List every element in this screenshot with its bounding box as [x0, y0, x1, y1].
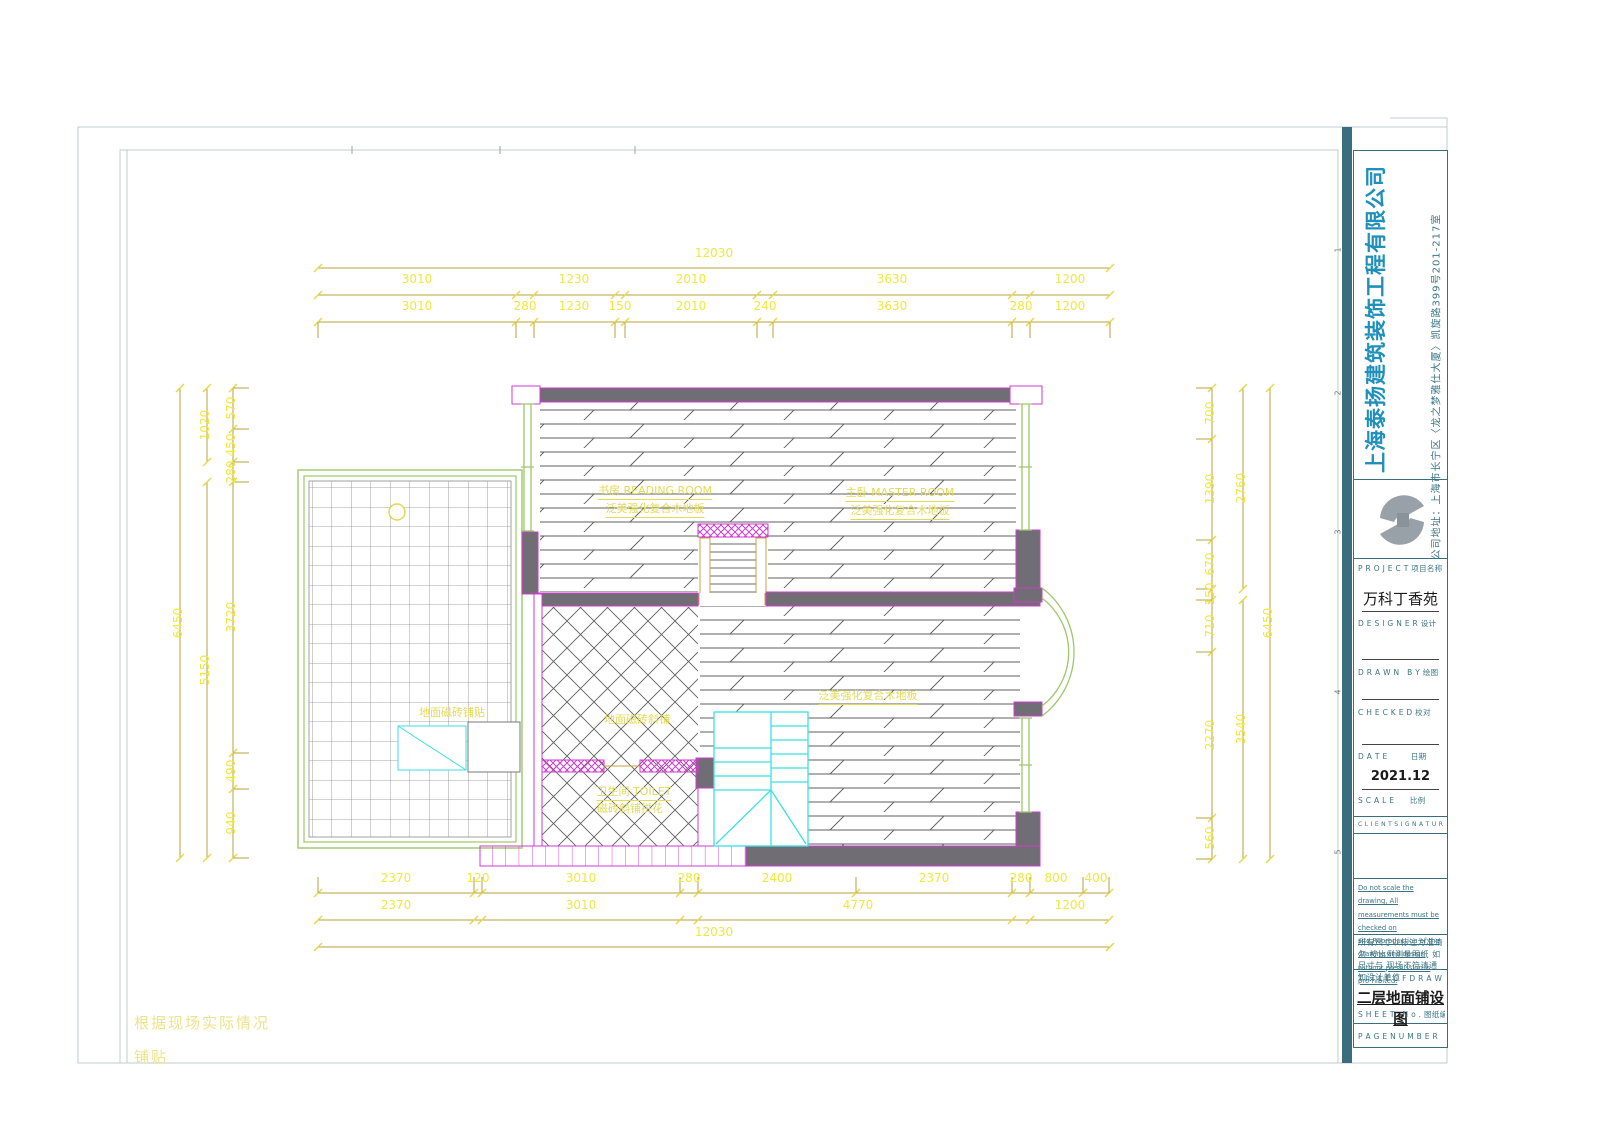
mosaic-strip [480, 846, 746, 866]
drain-circle [389, 504, 405, 520]
drawing-title: 二层地面铺设图 [1354, 987, 1447, 1029]
company-address: 公司地址：上海市长宁区〈龙之梦雅仕大厦〉凯旋路399号201-217室 [1428, 120, 1441, 560]
scale-label: S C A L E 比例 [1358, 795, 1445, 806]
site-note: 根据现场实际情况 铺贴 [130, 1008, 390, 1063]
upper-rooms-wood-floor [540, 402, 1016, 592]
fold-mark: 4 [1334, 689, 1343, 694]
title-block-bar [1342, 127, 1352, 1063]
drawing-sheet: 1203030101230201036301200301028012301502… [0, 0, 1600, 1131]
terrace-tile-grid [309, 481, 511, 837]
terrace [298, 470, 522, 848]
door-lintel-hatch [698, 524, 768, 537]
client-signature-label: C L I E N T S I G N A T U R E 客户签名 [1358, 819, 1445, 828]
project-label: P R O J E C T 项目名称 [1358, 563, 1445, 574]
company-logo [1372, 488, 1432, 552]
page-number-label: P A G E N U M B E R 图纸页码 [1358, 1031, 1445, 1042]
toilet-diagonal-tile [542, 607, 698, 846]
drawing-title-label: T I T L E O F D R A W I N G 图纸名称 [1358, 973, 1445, 984]
site-note-line1: 根据现场实际情况 [134, 1012, 270, 1033]
tb-divider [1354, 833, 1447, 834]
site-note-line2: 铺贴 [134, 1046, 168, 1063]
stairs [714, 712, 808, 846]
tb-divider [1354, 816, 1447, 817]
date-value: 2021.12 [1354, 769, 1447, 784]
equipment-box [468, 722, 520, 772]
company-name: 上海泰扬建筑装饰工程有限公司 [1360, 173, 1388, 473]
date-label: D A T E 日期 [1358, 751, 1445, 762]
threshold-hatch-left [542, 760, 604, 772]
fold-mark: 5 [1334, 849, 1343, 854]
furniture [398, 722, 520, 772]
fold-mark: 2 [1334, 390, 1343, 395]
drawn-label: D R A W N B Y 绘图 [1358, 667, 1445, 678]
threshold-hatch-right [640, 760, 698, 772]
fold-mark: 3 [1334, 529, 1343, 534]
sheet-no-label: S H E E T N o . 图纸编号 [1358, 1009, 1445, 1020]
checked-label: C H E C K E D 校对 [1358, 707, 1445, 718]
fold-mark: 1 [1334, 247, 1343, 252]
project-name: 万科丁香苑 [1354, 588, 1447, 609]
tb-divider [1354, 878, 1447, 879]
designer-label: D E S I G N E R 设计 [1358, 618, 1445, 629]
